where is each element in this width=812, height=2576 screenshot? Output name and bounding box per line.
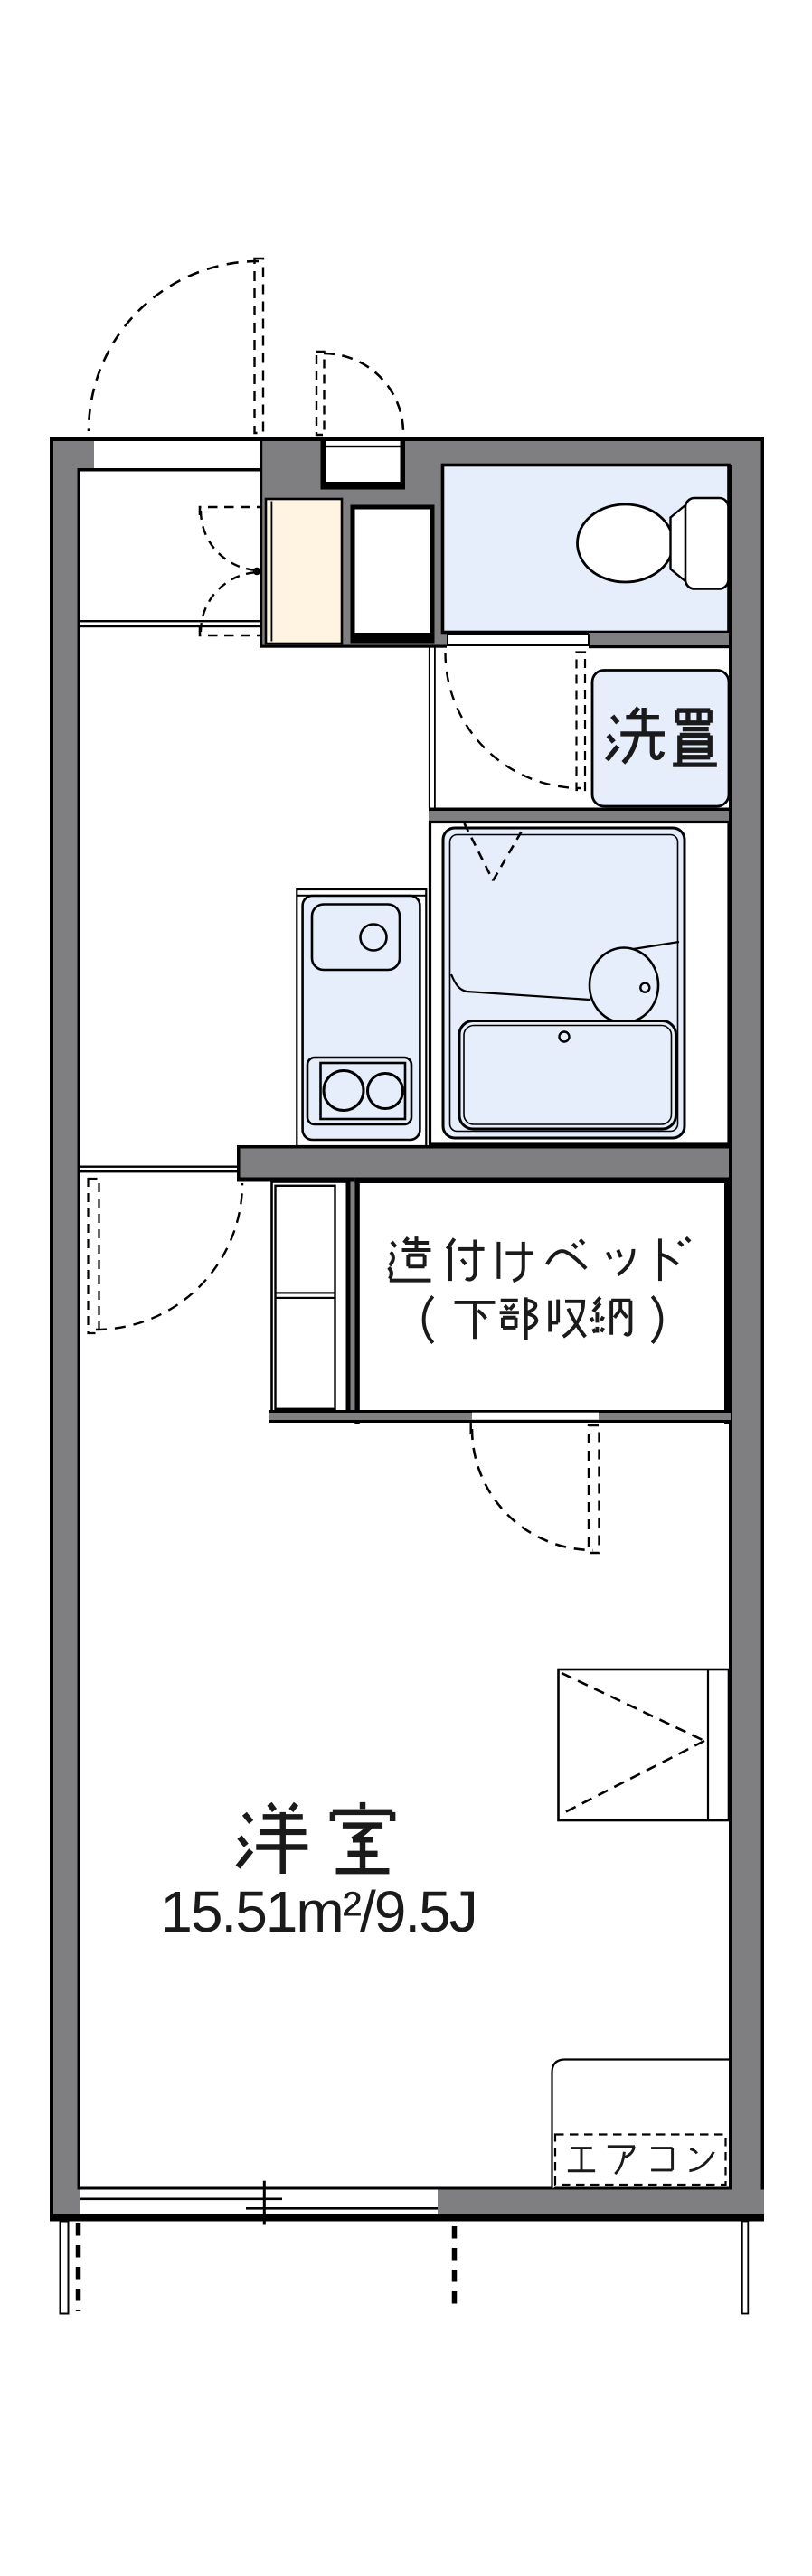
svg-text:15.51m²/9.5J: 15.51m²/9.5J: [160, 1879, 477, 1944]
